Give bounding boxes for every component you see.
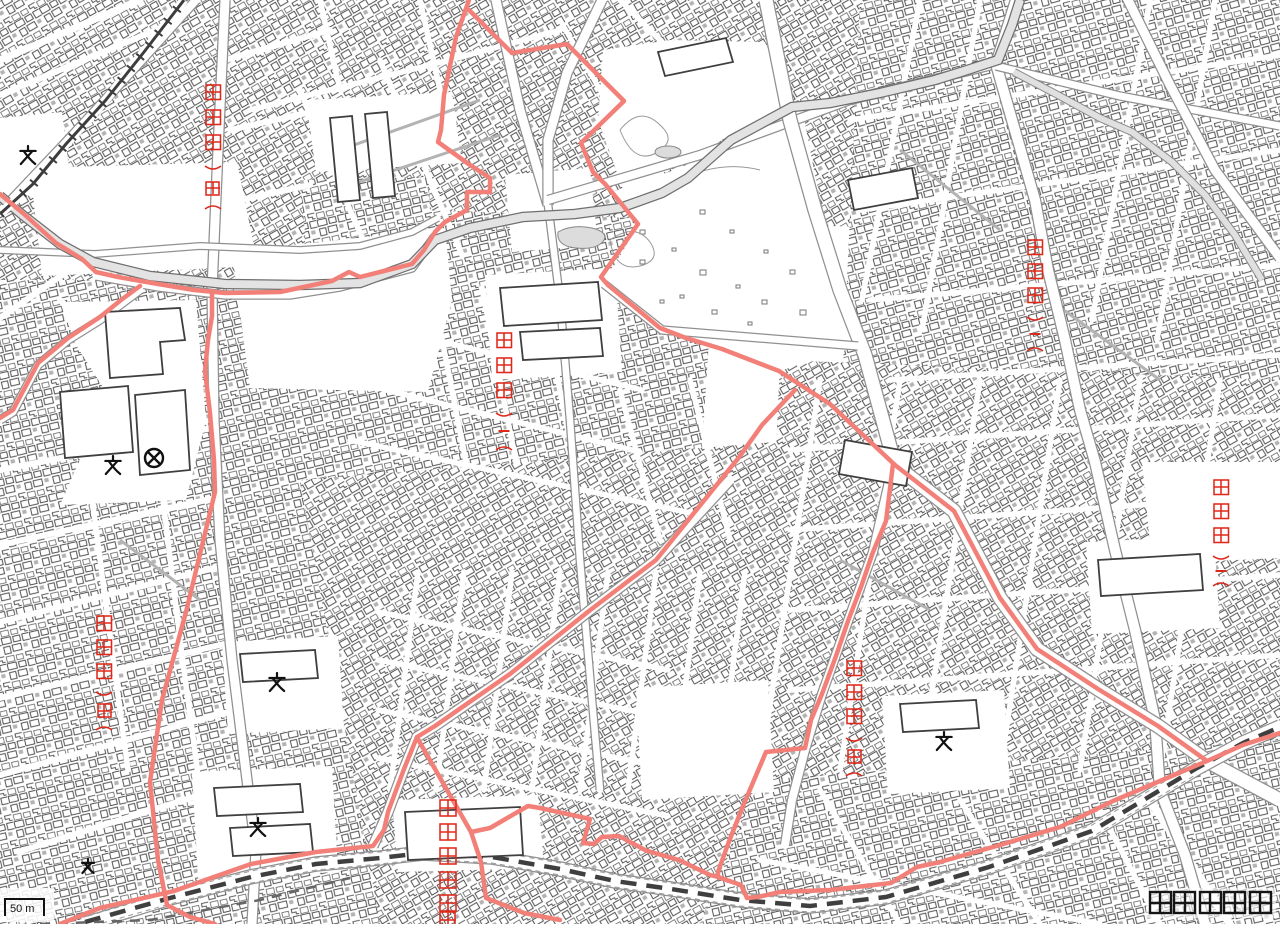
svg-text:50 m: 50 m bbox=[10, 903, 34, 915]
